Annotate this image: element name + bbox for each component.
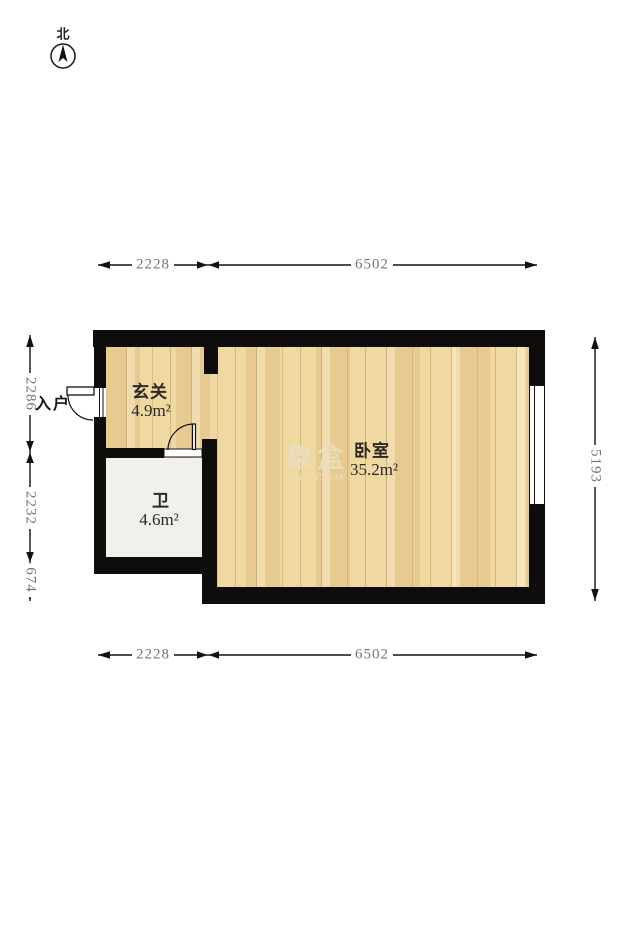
room-area-hallway: 4.9m² — [131, 401, 171, 421]
wall-left-lower — [94, 417, 106, 574]
wall-left-upper — [94, 330, 106, 388]
room-area-bathroom: 4.6m² — [139, 510, 179, 530]
dim-top-left: 2228 — [132, 257, 174, 274]
floor-plan-canvas: 2228 6502 2228 6502 2286 2232 674 5193 北… — [0, 0, 636, 937]
room-name-hallway: 玄关 — [132, 378, 168, 403]
entrance-label: 入户 — [35, 390, 71, 414]
watermark-brand: 象盒 — [286, 444, 348, 472]
dim-right: 5193 — [587, 445, 604, 487]
wall-bedroom-bottom — [202, 587, 545, 604]
dim-bottom-left: 2228 — [132, 647, 174, 664]
wall-stub-hallway — [204, 347, 218, 374]
window-mullion — [534, 386, 535, 504]
dim-top-right: 6502 — [351, 257, 393, 274]
exterior-patch — [93, 574, 202, 604]
entry-door-icon — [67, 387, 103, 420]
wall-right-upper — [529, 347, 545, 385]
compass-icon — [51, 44, 75, 68]
window — [529, 385, 545, 505]
dim-bottom-right: 6502 — [351, 647, 393, 664]
room-name-bathroom: 卫 — [152, 487, 170, 512]
watermark-site: XHJ.COM — [286, 473, 348, 484]
watermark: 象盒 XHJ.COM — [286, 444, 348, 484]
room-area-bedroom: 35.2m² — [350, 460, 398, 480]
wall-bath-top — [106, 448, 164, 458]
dim-left-middle: 2232 — [22, 487, 39, 529]
wall-bath-bottom — [94, 557, 217, 574]
wall-right-lower — [529, 505, 545, 604]
dim-left-lower: 674 — [22, 563, 39, 597]
wall-divider — [202, 439, 217, 604]
wall-top — [93, 330, 545, 347]
compass-north-label: 北 — [56, 24, 69, 43]
room-name-bedroom: 卧室 — [354, 437, 390, 462]
